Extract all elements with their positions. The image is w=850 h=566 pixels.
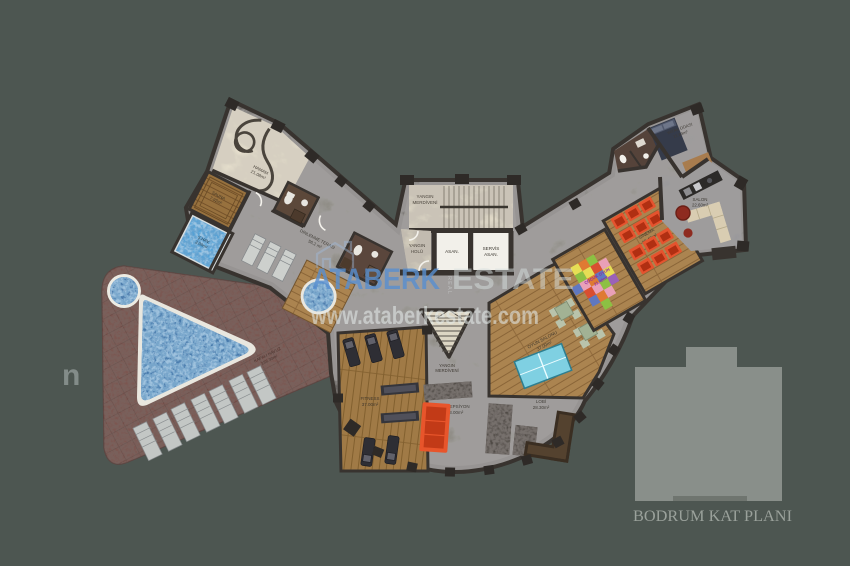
svg-text:www.ataberkestate.com: www.ataberkestate.com (310, 302, 539, 330)
svg-text:BODRUM KAT PLANI: BODRUM KAT PLANI (633, 508, 792, 525)
svg-text:ASAN.: ASAN. (484, 252, 498, 257)
svg-text:SALON: SALON (693, 197, 708, 202)
svg-text:LOBİ: LOBİ (536, 398, 546, 404)
svg-text:ESTATE: ESTATE (452, 263, 574, 296)
svg-text:22.60m²: 22.60m² (692, 203, 709, 208)
svg-text:HOLÜ: HOLÜ (411, 249, 423, 254)
svg-text:MERDİVENİ: MERDİVENİ (412, 199, 437, 205)
svg-text:ATABERK: ATABERK (312, 263, 440, 296)
svg-text:MERDİVENİ: MERDİVENİ (435, 368, 458, 373)
svg-text:YANGIN: YANGIN (417, 194, 434, 199)
svg-text:SERVİS: SERVİS (483, 245, 500, 251)
svg-text:YANGIN: YANGIN (409, 243, 426, 248)
svg-text:n: n (62, 359, 80, 392)
svg-text:FITNESS: FITNESS (360, 396, 379, 401)
svg-text:37.00m²: 37.00m² (362, 402, 379, 407)
svg-text:28.30m²: 28.30m² (533, 405, 550, 410)
svg-text:ASAN.: ASAN. (445, 249, 459, 254)
